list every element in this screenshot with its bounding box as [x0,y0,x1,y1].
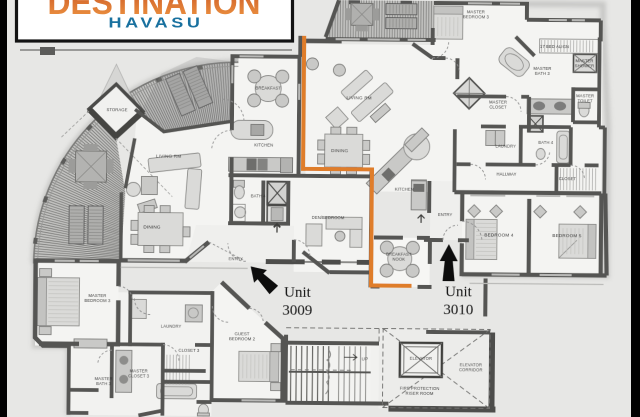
svg-text:CLOSET: CLOSET [559,176,577,181]
svg-text:3010: 3010 [443,302,473,318]
svg-text:BATH 4: BATH 4 [251,193,267,198]
svg-text:CLOSET 3: CLOSET 3 [128,373,150,378]
svg-text:LIVING RM: LIVING RM [156,154,181,159]
svg-text:TOILET: TOILET [578,98,594,103]
svg-text:3009: 3009 [282,303,312,319]
svg-text:NOOK: NOOK [392,257,405,262]
svg-text:CORRIDOR: CORRIDOR [459,367,483,372]
svg-text:ENTRY: ENTRY [438,212,453,217]
svg-text:KITCHEN: KITCHEN [395,187,414,192]
svg-text:LIVING RM: LIVING RM [346,95,371,100]
svg-text:BEDROOM 3: BEDROOM 3 [463,14,490,19]
svg-text:ELEVATOR: ELEVATOR [410,356,432,361]
svg-text:17 BED ALIGN: 17 BED ALIGN [540,44,569,49]
svg-text:Unit: Unit [445,284,473,300]
svg-text:BATH 3: BATH 3 [535,71,551,76]
svg-text:BATH 4: BATH 4 [538,140,554,145]
svg-text:DEN/BEDROOM: DEN/BEDROOM [312,215,345,220]
svg-text:BEDROOM 4: BEDROOM 4 [484,232,514,237]
svg-text:KITCHEN: KITCHEN [254,142,273,147]
svg-text:Unit: Unit [284,285,312,301]
svg-text:BATH 3: BATH 3 [96,381,112,386]
svg-text:CLOSET 3: CLOSET 3 [178,348,200,353]
svg-text:SHOWER: SHOWER [575,63,594,68]
svg-text:CLOSET: CLOSET [489,104,507,109]
svg-text:HAVASU: HAVASU [109,15,204,32]
svg-text:UP: UP [361,356,368,361]
svg-text:ENTRY: ENTRY [228,256,243,261]
svg-text:BEDROOM 3: BEDROOM 3 [84,298,111,303]
svg-text:DINING: DINING [331,148,349,153]
svg-text:STORAGE: STORAGE [106,107,127,112]
svg-text:RISER ROOM: RISER ROOM [406,391,434,396]
svg-text:BEDROOM 5: BEDROOM 5 [552,233,582,238]
svg-text:HALLWAY: HALLWAY [497,172,517,177]
svg-text:BEDROOM 2: BEDROOM 2 [229,336,256,341]
svg-text:LAUNDRY: LAUNDRY [161,324,182,329]
svg-text:DINING: DINING [143,224,161,229]
svg-text:BREAKFAST: BREAKFAST [255,85,281,90]
svg-text:LAUNDRY: LAUNDRY [495,144,516,149]
